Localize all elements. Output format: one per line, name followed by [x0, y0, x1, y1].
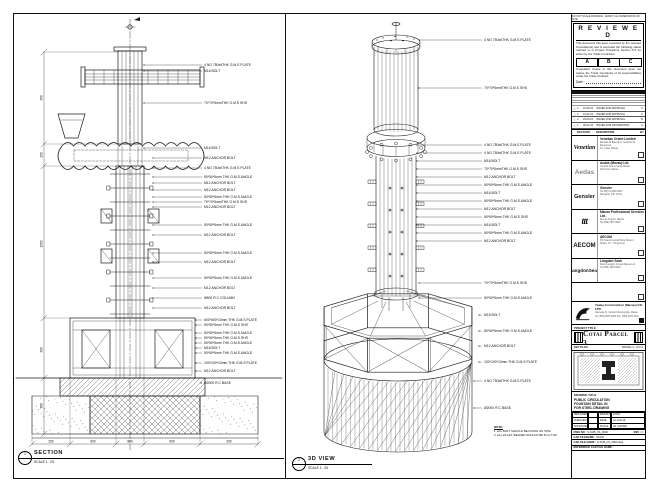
revision-status: A	[639, 124, 645, 127]
callout-label: 50*50*5mm THK G.M.S ANGLE	[484, 231, 533, 235]
callout-label: M12 ANCHOR BOLT	[204, 286, 236, 290]
revision-table-header: REV DATE DESCRIPTION BY	[572, 129, 645, 135]
section-view-scale: SCALE 1 : 25	[34, 460, 54, 464]
platform-braces	[324, 325, 472, 372]
callout-label: 70*70*5mmTHK G.M.S SHS	[204, 200, 248, 204]
consultant-block: Aedas Aedas (Macau) Ltd. Avenida Comerci…	[572, 161, 645, 186]
callout-label: 50*50*5mm THK G.M.S ANGLE	[484, 296, 533, 300]
project-title-row: Cotai Parcel 3	[572, 331, 645, 345]
stamp-box	[638, 152, 644, 158]
dim-value: 150	[40, 152, 44, 158]
title-block-column: DO NOT SCALE DRAWING. VERIFY ALL DIMENSI…	[571, 14, 645, 478]
dim-value: 600	[90, 440, 96, 444]
callout-label: Ø600 R.C COLUMN	[204, 296, 235, 300]
callout-label: 50*50*5mm THK G.M.S ANGLE	[204, 175, 253, 179]
reviewed-date-line	[586, 80, 641, 84]
consultant-address: Estrada da Baía de N. Senhora da Esperan…	[600, 142, 644, 151]
title-block-filler	[572, 451, 645, 478]
callout-label: 50*50*5mm THK G.M.S ANGLE	[204, 276, 253, 280]
callout-label: Ø2000 R.C BASE	[484, 406, 512, 410]
iso-callout-labels: 4 NO 750x6THK G.M.S PLATE70*70*5mmTHK G.…	[484, 38, 538, 410]
section-linework	[16, 17, 282, 450]
callout-label: 50*50*5mm THK G.M.S ANGLE	[204, 331, 253, 335]
callout-label: 70*70*5mmTHK G.M.S SHS	[484, 86, 528, 90]
dim-value: 800	[127, 440, 133, 444]
callout-label: 100*100*10mm THK G.M.S PLATE	[484, 360, 538, 364]
status-option-a: A	[576, 58, 598, 68]
signature-fields: DESIGNED DRAWN LUNG CHECKED - DATE 14-JU…	[572, 412, 645, 430]
revision-date: 26-03-15	[583, 118, 596, 121]
callout-label: 50*50*5mm THK G.M.S ANGLE	[204, 351, 253, 355]
key-plan	[572, 351, 645, 392]
consultant-logo: ttt	[572, 210, 598, 234]
section-bubble-sheet: -	[19, 459, 31, 465]
consultant-name: AECOM	[600, 236, 644, 240]
project-title: Cotai Parcel 3	[583, 329, 634, 347]
callout-label: M12 ANCHOR BOLT	[204, 233, 236, 237]
callout-label: 100*100*10mm THK G.M.S PLATE	[204, 361, 258, 365]
dim-value: 250	[48, 440, 54, 444]
section-title-rule	[32, 458, 284, 459]
gate-ornament-icon	[574, 332, 583, 343]
revision-description: ISSUED FOR APPROVAL	[596, 113, 639, 116]
consultant-name: Macau Professional Services Ltd.	[600, 211, 644, 218]
iso-linework	[324, 22, 472, 452]
platform-posts	[324, 294, 472, 372]
callout-label: M16 BOLT	[204, 346, 220, 350]
iso-view-title: 3D VIEW	[308, 456, 335, 462]
platform-bottom-octagon	[324, 328, 472, 372]
consultant-address-line: Shanghai, P.R. China	[600, 194, 644, 197]
callout-label: M12 ANCHOR BOLT	[204, 369, 236, 373]
callout-label: 4 NO 750x6THK G.M.S PLATE	[204, 166, 252, 170]
callout-label: M12 ANCHOR BOLT	[204, 205, 236, 209]
revision-table: △421-05-15ISSUED FOR APPROVALC△314-04-15…	[572, 91, 645, 136]
callout-label: 70*70*5mmTHK G.M.S SHS	[204, 101, 248, 105]
revision-date: 14-04-15	[583, 113, 596, 116]
revision-status: C	[639, 107, 645, 110]
revision-status: B	[639, 118, 645, 121]
stamp-box	[638, 177, 644, 183]
consultant-address-line: s/n, Taipa, Macau	[600, 148, 644, 151]
consultant-name: Gensler	[600, 187, 644, 191]
callout-label: 50*50*5mm THK G.M.S SHS	[204, 336, 249, 340]
dim-value: 400	[40, 347, 44, 353]
callout-label: M12 ANCHOR BOLT	[204, 156, 236, 160]
consultant-block: ttt Macau Professional Services Ltd. Rua…	[572, 210, 645, 235]
callout-label: 4 NO 750x6THK G.M.S PLATE	[484, 38, 532, 42]
callout-label: 50*50*5mm THK G.M.S ANGLE	[484, 329, 533, 333]
callout-label: 50*50*5mm THK G.M.S ANGLE	[484, 183, 533, 187]
key-plan-highlight	[602, 361, 615, 380]
dim-value: 380	[40, 403, 44, 409]
callout-label: 4 NO 750x6THK G.M.S PLATE	[204, 63, 252, 67]
revision-date: 08-02-15	[583, 124, 596, 127]
funnel	[58, 114, 85, 138]
contractor-phone: Tel: (853) 2875 0000 Fax: (853) 2875 000…	[595, 316, 644, 319]
callout-label: 4 NO 750x6THK G.M.S PLATE	[484, 379, 532, 383]
stamp-box	[638, 250, 644, 256]
drawing-title: PUBLIC CIRCULATION FOUNTAIN DETAIL IN FO…	[572, 397, 645, 412]
iso-bubble-sheet: -	[293, 465, 305, 471]
consultant-logo: Venetian	[572, 136, 598, 160]
callout-label: 50*50*5mm THK G.M.S SHS	[484, 215, 529, 219]
callout-label: 600*600*10mm THK G.M.S PLATE	[204, 318, 258, 322]
contractor-stamp	[639, 318, 644, 323]
section-view-svg: 4501501050400380250600800600250 4 NO 750…	[14, 14, 285, 455]
consultant-address: Davis Langdon & Seah Macau Ltd.Tel (853)…	[600, 264, 644, 270]
callout-label: 50*50*5mm THK G.M.S ANGLE	[204, 195, 253, 199]
contractor-address: Alameda Dr. Carlos D'Assumpção, Macau	[595, 312, 644, 315]
callout-label: M16 BOLT	[484, 191, 500, 195]
stamp-box	[638, 201, 644, 207]
callout-label: M12 ANCHOR BOLT	[484, 239, 516, 243]
reviewed-body-2: Consultant review of this document does …	[576, 68, 641, 79]
section-callout-labels: 4 NO 750x6THK G.M.S PLATEM16 BOLT70*70*5…	[204, 63, 258, 385]
consultant-block: Gensler Gensler Tel (86) 21 0000 0000Sha…	[572, 185, 645, 210]
consultant-address-line: AIA Tower, Macau	[600, 169, 644, 172]
iso-view-svg: 4 NO 750x6THK G.M.S PLATE70*70*5mmTHK G.…	[286, 14, 570, 464]
key-plan-zone: PARCEL 3 - LOT A	[622, 346, 643, 349]
status-option-c: C	[619, 58, 641, 68]
gate-ornament-icon	[634, 332, 643, 343]
callout-label: 70*70*5mmTHK G.M.S SHS	[484, 167, 528, 171]
consultant-address: Tel (86) 21 0000 0000Shanghai, P.R. Chin…	[600, 191, 644, 197]
note-item: 2. ALL FILLET WELDED SHOULD BE 6mm THK.	[494, 434, 568, 438]
contractor-logo-icon	[572, 302, 594, 324]
callout-label: M12 ANCHOR BOLT	[484, 175, 516, 179]
water-level-icon	[134, 17, 140, 21]
consultant-logo: AECOM	[572, 234, 598, 258]
callout-label: M12 ANCHOR BOLT	[204, 260, 236, 264]
upper-column	[374, 47, 418, 130]
callout-label: 4 NO 750x6THK G.M.S PLATE	[484, 151, 532, 155]
reviewed-status-options: A B C	[576, 58, 641, 68]
callout-label: M16 BOLT	[204, 69, 220, 73]
scallop-band	[58, 143, 204, 170]
consultant-address-line: Tel (853) 2870 0000	[600, 222, 644, 225]
callout-label: 50*50*5mm THK G.M.S ANGLE	[484, 199, 533, 203]
base-box	[70, 318, 195, 378]
plinth-hatch	[60, 378, 205, 396]
consultant-address-line: Shatin, N.T., Hong Kong	[600, 243, 644, 246]
callout-label: M12 ANCHOR BOLT	[204, 181, 236, 185]
consultant-logo: Gensler	[572, 185, 598, 209]
callout-label: M16 BOLT	[204, 146, 220, 150]
callout-label: M12 ANCHOR BOLT	[484, 344, 516, 348]
dim-value: 450	[40, 95, 44, 101]
callout-label: 50*50*5mm THK G.M.S ANGLE	[204, 251, 253, 255]
revision-date: 21-05-15	[583, 107, 596, 110]
callout-label: 4 NO 750x6THK G.M.S PLATE	[484, 143, 532, 147]
iso-bubble: 2 -	[292, 457, 306, 471]
consultant-block: Venetian Venetian Orient Limited Estrada…	[572, 136, 645, 161]
revision-description: ISSUED FOR INFORMATION	[596, 124, 639, 127]
dimension-lines	[29, 49, 261, 447]
revision-description: ISSUED FOR APPROVAL	[596, 118, 639, 121]
empty-consultant-slot	[572, 283, 645, 302]
reviewed-stamp: R E V I E W E D This document has been r…	[572, 22, 645, 91]
platform-top-octagon	[324, 294, 472, 338]
stamp-box	[638, 226, 644, 232]
consultant-address: 8/F, Grand Central Plaza Tower 2Shatin, …	[600, 240, 644, 246]
reviewed-date-label: Date :	[576, 80, 585, 84]
consultant-block: AECOM AECOM 8/F, Grand Central Plaza Tow…	[572, 234, 645, 259]
callout-label: M12 ANCHOR BOLT	[484, 207, 516, 211]
dim-value: 600	[169, 440, 175, 444]
revision-description: ISSUED FOR APPROVAL	[596, 107, 639, 110]
consultant-logo: Aedas	[572, 161, 598, 185]
notes-block: NOTE: 1. ALL BOLT SHOULD BE FIXING ON SI…	[494, 426, 568, 438]
consultant-address-line: Tel (853) 2833 0000	[600, 267, 644, 270]
callout-label: 50*50*5mm THK G.M.S SHS	[204, 323, 249, 327]
callout-label: M16 BOLT	[484, 159, 500, 163]
iso-view-scale: SCALE 1 : 25	[308, 466, 328, 470]
stamp-box	[638, 294, 644, 300]
dim-value: 250	[226, 440, 232, 444]
status-option-b: B	[598, 58, 620, 68]
sheet-top-note: DO NOT SCALE DRAWING. VERIFY ALL DIMENSI…	[572, 14, 645, 22]
callout-label: M12 ANCHOR BOLT	[204, 306, 236, 310]
contractor-name: Yadea Construction (Macau) CO. LTD.	[595, 304, 644, 311]
reviewed-body-1: This document has been reviewed by the r…	[576, 42, 641, 57]
stamp-box	[638, 275, 644, 281]
section-panel: 4501501050400380250600800600250 4 NO 750…	[14, 14, 286, 478]
flange-ring	[367, 130, 425, 147]
key-plan-label: KEY PLAN	[574, 346, 588, 349]
callout-label: 50*50*5mm THK G.M.S ANGLE	[204, 223, 253, 227]
callout-label: M12 ANCHOR BOLT	[204, 188, 236, 192]
callout-label: Ø2000 R.C BASE	[204, 381, 232, 385]
sheet-frame: 4501501050400380250600800600250 4 NO 750…	[13, 13, 646, 479]
revision-status: C	[639, 113, 645, 116]
consultant-name: Venetian Orient Limited	[600, 138, 644, 142]
contractor-block: Yadea Construction (Macau) CO. LTD. Alam…	[572, 302, 645, 325]
reviewed-title: R E V I E W E D	[576, 25, 641, 41]
section-bubble: 1 -	[18, 451, 32, 465]
callout-label: M16 BOLT	[484, 223, 500, 227]
key-plan-svg	[572, 351, 645, 391]
callout-label: 70*70*5mmTHK G.M.S SHS	[484, 281, 528, 285]
iso-panel: 4 NO 750x6THK G.M.S PLATE70*70*5mmTHK G.…	[286, 14, 570, 478]
consultant-address: Rua de Pequim, MacauTel (853) 2870 0000	[600, 219, 644, 225]
callout-label: 50*50*5mm THK G.M.S ANGLE	[204, 341, 253, 345]
consultant-block: LangdonSeah Langdon Seah Davis Langdon &…	[572, 259, 645, 284]
section-view-title: SECTION	[34, 450, 63, 456]
callout-label: M16 BOLT	[484, 313, 500, 317]
section-callout-leaders	[143, 64, 202, 383]
base-drum	[324, 339, 472, 381]
consultant-logo: LangdonSeah	[572, 259, 598, 283]
consultant-address: Avenida Comercial de MacauAIA Tower, Mac…	[600, 166, 644, 172]
drawing-sheet-app: 4501501050400380250600800600250 4 NO 750…	[0, 0, 650, 488]
dim-value: 1050	[40, 240, 44, 247]
